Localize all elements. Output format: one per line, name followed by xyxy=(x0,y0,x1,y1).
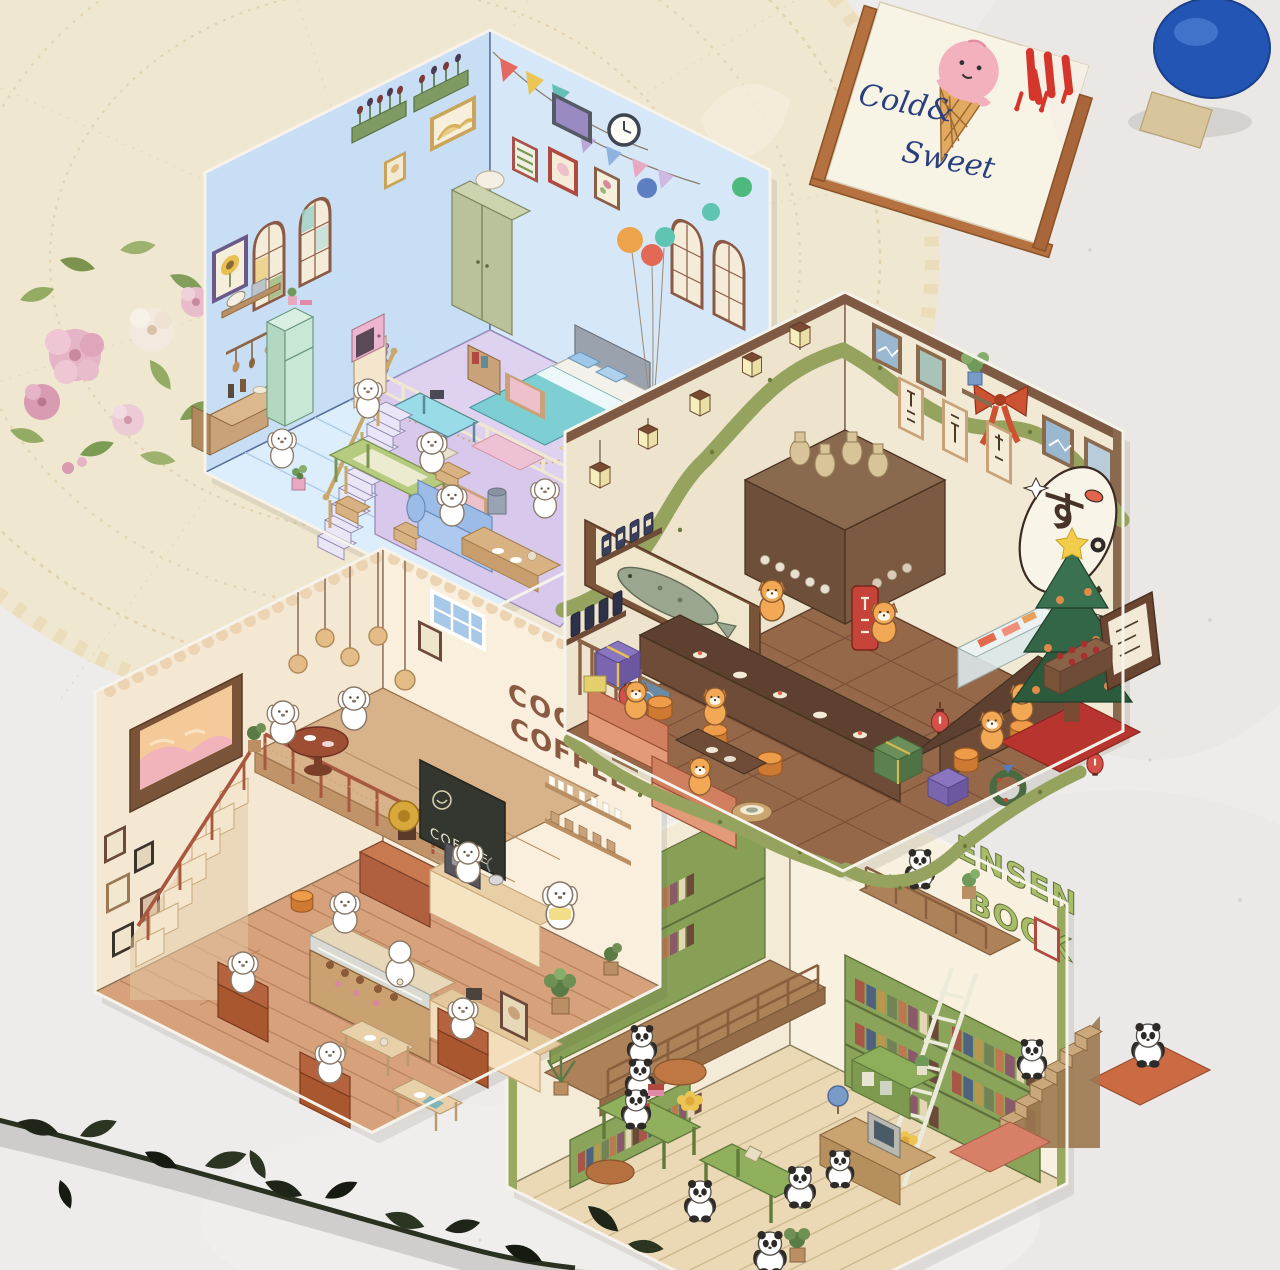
panda-climbing-stairs xyxy=(1017,1039,1047,1079)
poodle-barista xyxy=(453,842,483,883)
puppy-cooking xyxy=(354,379,383,418)
poodle-seated-low xyxy=(315,1042,345,1083)
poodle-back-view xyxy=(386,941,414,987)
counter-stool xyxy=(648,696,672,720)
puppy-by-counter xyxy=(268,429,297,468)
shiba-on-sofa xyxy=(624,682,648,719)
coffee-pot xyxy=(489,875,503,885)
wall-dot-green xyxy=(732,177,752,197)
poodle-at-table xyxy=(267,701,299,744)
panda-at-table xyxy=(784,1166,816,1209)
potted-plant xyxy=(292,465,307,490)
puppy-right xyxy=(531,479,560,518)
round-rug xyxy=(654,1059,706,1085)
poodle-at-table xyxy=(338,687,370,730)
panda-at-desk xyxy=(826,1150,855,1188)
panda-at-table xyxy=(684,1180,716,1223)
panda-walking xyxy=(753,1231,787,1270)
wall-dot-teal xyxy=(702,203,720,221)
poodle-with-apron xyxy=(543,882,578,929)
trash-bin xyxy=(488,488,506,514)
shiba-at-booth xyxy=(688,758,712,795)
shiba-standing xyxy=(979,711,1004,750)
pumpkin xyxy=(476,171,504,189)
cactus-pot xyxy=(288,296,297,305)
wall-clock xyxy=(609,115,639,145)
cash-register xyxy=(466,988,482,1000)
counter-stool xyxy=(954,748,978,772)
globe xyxy=(828,1086,848,1106)
diorama-photo: ENSEN BOOK xyxy=(0,0,1280,1270)
puppy-on-floor xyxy=(417,432,447,473)
poodle-holding-cup xyxy=(330,892,360,933)
shiba-chef xyxy=(871,602,897,643)
round-rug xyxy=(586,1160,634,1184)
wall-dot-blue xyxy=(637,178,657,198)
puppy-on-sofa xyxy=(437,485,467,526)
orange-stool xyxy=(291,891,313,913)
shiba-chef xyxy=(759,580,785,621)
photo-stage: ENSEN BOOK xyxy=(0,0,1280,1270)
